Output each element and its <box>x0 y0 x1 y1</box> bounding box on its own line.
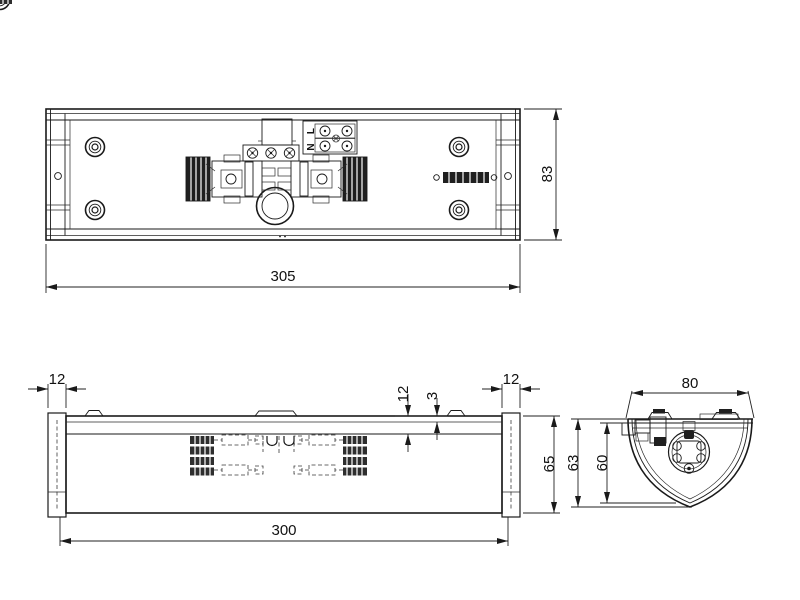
hidden-center-hooks <box>267 436 294 454</box>
dimension-side-width: 80 <box>626 375 754 418</box>
lamp-holder-assembly <box>278 155 367 203</box>
dim-label-12-recess: 12 <box>395 386 412 403</box>
dim-label-300: 300 <box>271 522 296 539</box>
dim-label-3: 3 <box>424 392 441 400</box>
right-end-cap <box>502 413 520 517</box>
dimension-top-height: 83 <box>524 109 562 240</box>
engineering-drawing-sheet: L N <box>0 0 800 600</box>
dimension-top-length: 305 <box>46 244 520 293</box>
mounting-clip <box>447 411 465 417</box>
hidden-internals <box>190 435 263 476</box>
junction-box <box>258 119 296 145</box>
lamp-holder <box>669 422 710 474</box>
lamp-spring <box>186 157 210 201</box>
hidden-spring-row <box>0 0 12 4</box>
dim-label-83: 83 <box>539 166 556 183</box>
dim-label-12-right: 12 <box>503 371 520 388</box>
left-end-cap <box>48 413 66 517</box>
dimension-endcap-right: 12 <box>482 371 540 408</box>
dimension-endcap-left: 12 <box>28 371 86 408</box>
screw-grommet <box>450 201 469 220</box>
tension-spring <box>434 172 497 183</box>
terminal-screw <box>247 148 257 158</box>
side-view: 80 63 60 <box>565 375 754 507</box>
dim-label-65: 65 <box>541 456 558 473</box>
dim-label-305: 305 <box>270 268 295 285</box>
top-plate <box>628 414 753 428</box>
cap-screw-hole <box>55 173 62 180</box>
lamp-holder-assembly <box>186 155 275 203</box>
terminal-screw <box>284 148 294 158</box>
screw-grommet <box>86 201 105 220</box>
drawing-canvas: L N <box>0 0 800 600</box>
top-view: L N <box>0 0 562 293</box>
cap-screw-hole <box>505 173 512 180</box>
screw-grommet <box>450 138 469 157</box>
dim-label-63: 63 <box>565 455 582 472</box>
hidden-internals <box>294 435 367 476</box>
mounting-clip <box>648 409 672 419</box>
mounting-clip <box>85 411 103 417</box>
terminal-neutral-label: N <box>306 143 317 150</box>
terminal-screw <box>266 148 276 158</box>
terminal-block: L N <box>303 121 357 154</box>
screw-grommet <box>86 138 105 157</box>
dim-label-80: 80 <box>682 375 699 392</box>
left-end-cap <box>46 109 70 240</box>
dim-label-12-left: 12 <box>49 371 66 388</box>
terminal-strip <box>243 145 299 161</box>
dim-label-60: 60 <box>594 455 611 472</box>
dimension-front-length: 300 <box>60 517 508 546</box>
right-end-cap <box>496 109 520 240</box>
dimension-front-height: 65 <box>523 416 560 513</box>
terminal-live-label: L <box>306 128 317 134</box>
dimension-recess: 12 <box>395 386 412 452</box>
